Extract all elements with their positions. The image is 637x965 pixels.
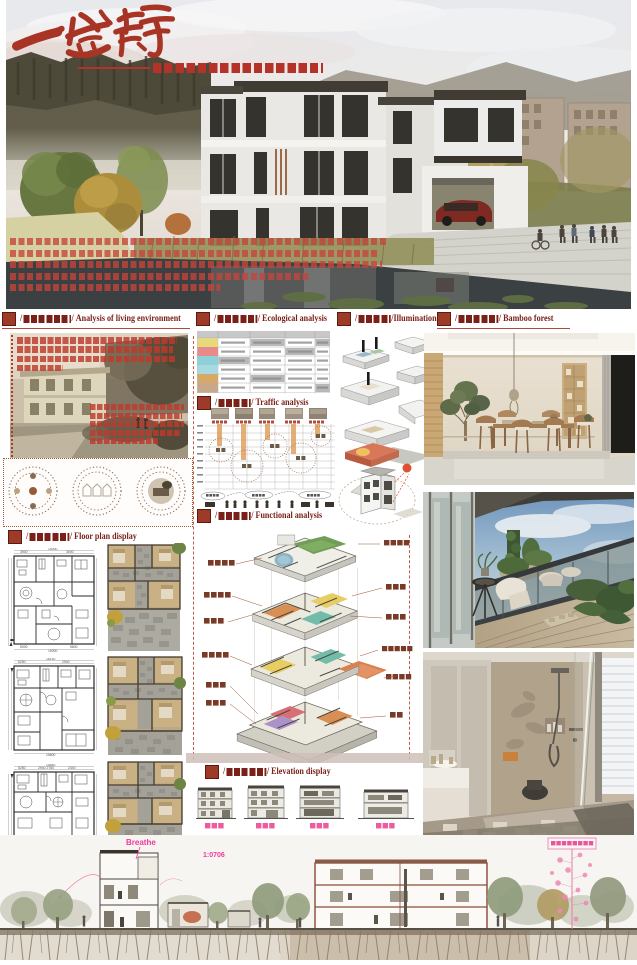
svg-text:3000: 3000 — [66, 550, 74, 554]
svg-text:Breathe: Breathe — [126, 838, 156, 847]
svg-text:15000: 15000 — [48, 548, 58, 551]
svg-text:2440: 2440 — [68, 766, 76, 770]
svg-text:16140: 16140 — [46, 658, 56, 661]
svg-text:1:0706: 1:0706 — [203, 852, 225, 859]
svg-text:5250: 5250 — [18, 660, 26, 664]
svg-text:15000: 15000 — [48, 649, 58, 652]
svg-text:5840: 5840 — [70, 645, 78, 649]
svg-text:5250: 5250 — [18, 766, 26, 770]
svg-text:3900: 3900 — [20, 550, 28, 554]
svg-text:5000: 5000 — [20, 645, 28, 649]
svg-text:2940: 2940 — [62, 660, 70, 664]
svg-text:2940 2760: 2940 2760 — [38, 766, 54, 770]
svg-text:15800: 15800 — [46, 753, 56, 756]
